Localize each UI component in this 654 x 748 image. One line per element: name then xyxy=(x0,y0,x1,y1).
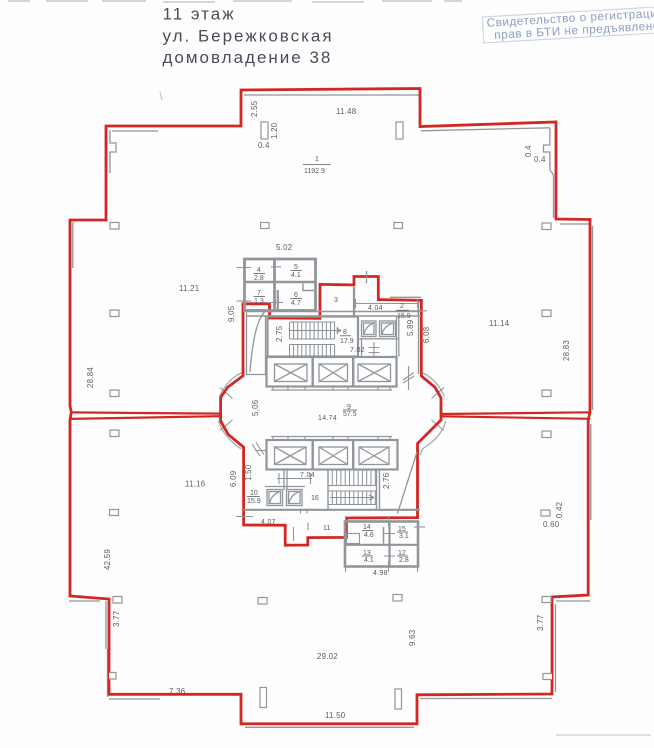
svg-text:14: 14 xyxy=(363,524,371,531)
svg-text:4.1: 4.1 xyxy=(291,272,301,279)
svg-text:2.55: 2.55 xyxy=(250,100,259,117)
svg-text:2.75: 2.75 xyxy=(275,325,284,342)
svg-text:ул. Бережковская: ул. Бережковская xyxy=(163,26,334,45)
svg-text:8: 8 xyxy=(343,329,347,336)
svg-text:9.05: 9.05 xyxy=(227,305,236,322)
svg-text:0.4: 0.4 xyxy=(258,141,270,150)
svg-text:7.04: 7.04 xyxy=(300,472,315,479)
svg-text:2: 2 xyxy=(400,303,404,310)
svg-text:7.02: 7.02 xyxy=(350,347,365,354)
svg-text:0.4: 0.4 xyxy=(534,155,546,164)
svg-text:4.07: 4.07 xyxy=(261,519,276,526)
svg-text:0.4: 0.4 xyxy=(524,145,533,157)
svg-text:4.98: 4.98 xyxy=(373,570,388,577)
svg-text:3.1: 3.1 xyxy=(399,533,409,540)
svg-text:15.9: 15.9 xyxy=(247,498,261,505)
svg-text:домовладение 38: домовладение 38 xyxy=(163,48,333,67)
svg-text:29.02: 29.02 xyxy=(317,652,338,661)
svg-text:7.36: 7.36 xyxy=(169,687,185,696)
svg-text:4.7: 4.7 xyxy=(291,300,301,307)
svg-text:1192.9: 1192.9 xyxy=(304,168,325,175)
svg-text:57.5: 57.5 xyxy=(343,411,357,418)
svg-text:9.63: 9.63 xyxy=(408,630,417,646)
svg-text:1.50: 1.50 xyxy=(244,464,253,481)
svg-text:3.77: 3.77 xyxy=(112,611,121,627)
svg-text:14.74: 14.74 xyxy=(318,415,337,422)
svg-text:28.83: 28.83 xyxy=(562,340,571,361)
svg-text:11.21: 11.21 xyxy=(179,284,199,293)
svg-text:1: 1 xyxy=(315,156,319,163)
svg-text:7: 7 xyxy=(257,290,261,297)
svg-text:4.04: 4.04 xyxy=(368,305,383,312)
svg-text:5.02: 5.02 xyxy=(276,243,292,252)
svg-text:4.6: 4.6 xyxy=(364,532,374,539)
svg-text:11: 11 xyxy=(323,525,330,532)
svg-text:42.59: 42.59 xyxy=(103,549,112,570)
svg-text:0.42: 0.42 xyxy=(555,502,564,518)
svg-text:17.9: 17.9 xyxy=(340,338,354,345)
svg-text:2.76: 2.76 xyxy=(382,473,391,489)
svg-text:11.50: 11.50 xyxy=(325,711,346,720)
svg-text:11.48: 11.48 xyxy=(336,107,356,116)
svg-text:5.89: 5.89 xyxy=(406,320,415,336)
svg-text:10: 10 xyxy=(250,490,258,497)
svg-text:15.9: 15.9 xyxy=(397,313,411,320)
svg-text:5.06: 5.06 xyxy=(251,400,260,416)
svg-text:1.20: 1.20 xyxy=(270,122,279,139)
svg-text:3.77: 3.77 xyxy=(536,615,545,631)
svg-text:6: 6 xyxy=(294,292,298,299)
svg-text:2.8: 2.8 xyxy=(254,275,264,282)
svg-text:6.08: 6.08 xyxy=(422,327,431,343)
svg-text:28.84: 28.84 xyxy=(86,367,95,388)
svg-text:2.8: 2.8 xyxy=(399,557,409,564)
svg-text:3: 3 xyxy=(334,297,338,304)
svg-text:4: 4 xyxy=(257,267,261,274)
svg-text:0.60: 0.60 xyxy=(543,520,560,529)
svg-text:16: 16 xyxy=(311,495,319,502)
svg-text:1.3: 1.3 xyxy=(254,298,264,305)
svg-text:11.16: 11.16 xyxy=(185,480,205,489)
svg-text:5: 5 xyxy=(294,264,298,271)
svg-text:11 этаж: 11 этаж xyxy=(163,5,236,24)
svg-text:4.1: 4.1 xyxy=(364,557,374,564)
svg-text:11.14: 11.14 xyxy=(489,319,510,328)
svg-text:6.09: 6.09 xyxy=(229,471,238,487)
